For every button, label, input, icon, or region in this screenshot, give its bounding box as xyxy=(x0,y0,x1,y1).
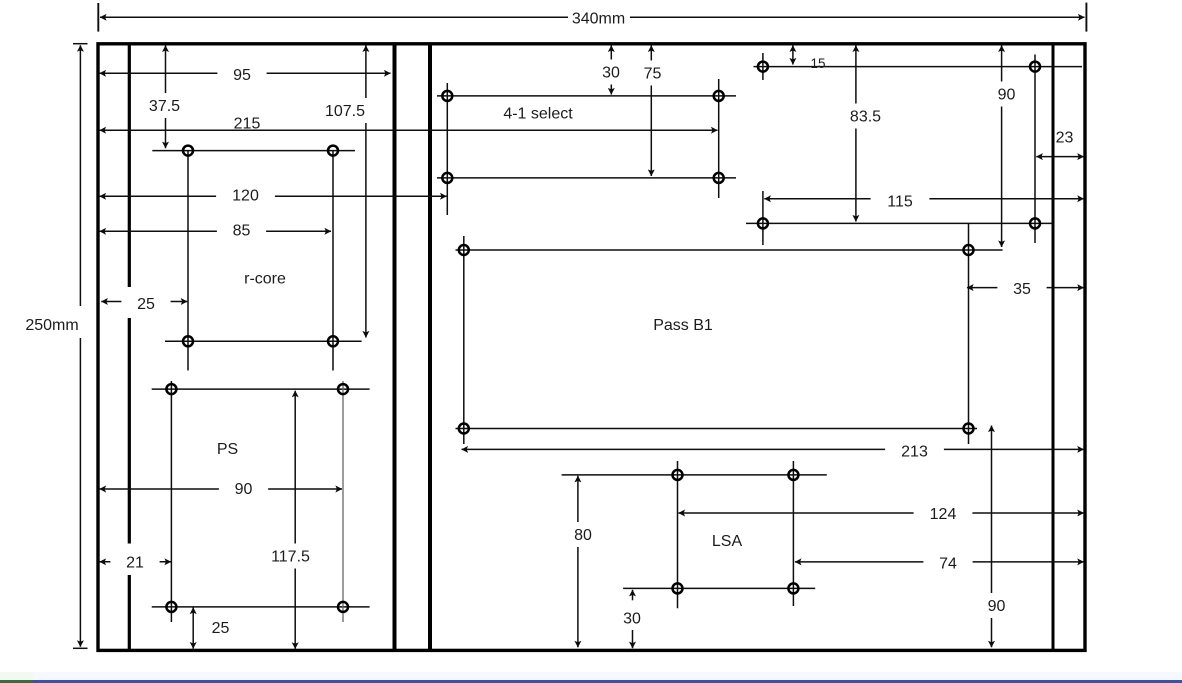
svg-text:21: 21 xyxy=(126,555,144,572)
svg-text:124: 124 xyxy=(930,506,957,523)
svg-text:90: 90 xyxy=(998,87,1016,104)
svg-text:Pass B1: Pass B1 xyxy=(653,317,713,334)
svg-text:215: 215 xyxy=(234,116,261,133)
svg-text:85: 85 xyxy=(233,223,251,240)
svg-text:4-1 select: 4-1 select xyxy=(503,106,573,123)
svg-text:35: 35 xyxy=(1013,281,1031,298)
svg-text:LSA: LSA xyxy=(712,533,743,550)
svg-text:120: 120 xyxy=(232,188,259,205)
svg-text:213: 213 xyxy=(901,444,928,461)
svg-text:250mm: 250mm xyxy=(25,317,78,334)
svg-text:340mm: 340mm xyxy=(572,11,625,28)
svg-text:15: 15 xyxy=(810,56,825,71)
svg-text:75: 75 xyxy=(644,66,662,83)
svg-text:r-core: r-core xyxy=(244,271,286,288)
svg-text:30: 30 xyxy=(623,611,641,628)
svg-text:PS: PS xyxy=(217,441,238,458)
svg-text:115: 115 xyxy=(887,194,913,211)
svg-text:23: 23 xyxy=(1056,130,1074,147)
svg-text:107.5: 107.5 xyxy=(325,103,365,120)
svg-text:90: 90 xyxy=(988,598,1006,615)
svg-text:117.5: 117.5 xyxy=(271,549,310,566)
svg-text:90: 90 xyxy=(235,481,253,498)
svg-text:80: 80 xyxy=(574,527,592,544)
svg-text:30: 30 xyxy=(602,65,620,82)
svg-text:83.5: 83.5 xyxy=(850,109,881,126)
svg-text:74: 74 xyxy=(939,556,957,573)
svg-text:95: 95 xyxy=(233,67,251,84)
svg-text:25: 25 xyxy=(212,620,230,637)
svg-text:25: 25 xyxy=(137,296,155,313)
svg-text:37.5: 37.5 xyxy=(149,98,180,115)
